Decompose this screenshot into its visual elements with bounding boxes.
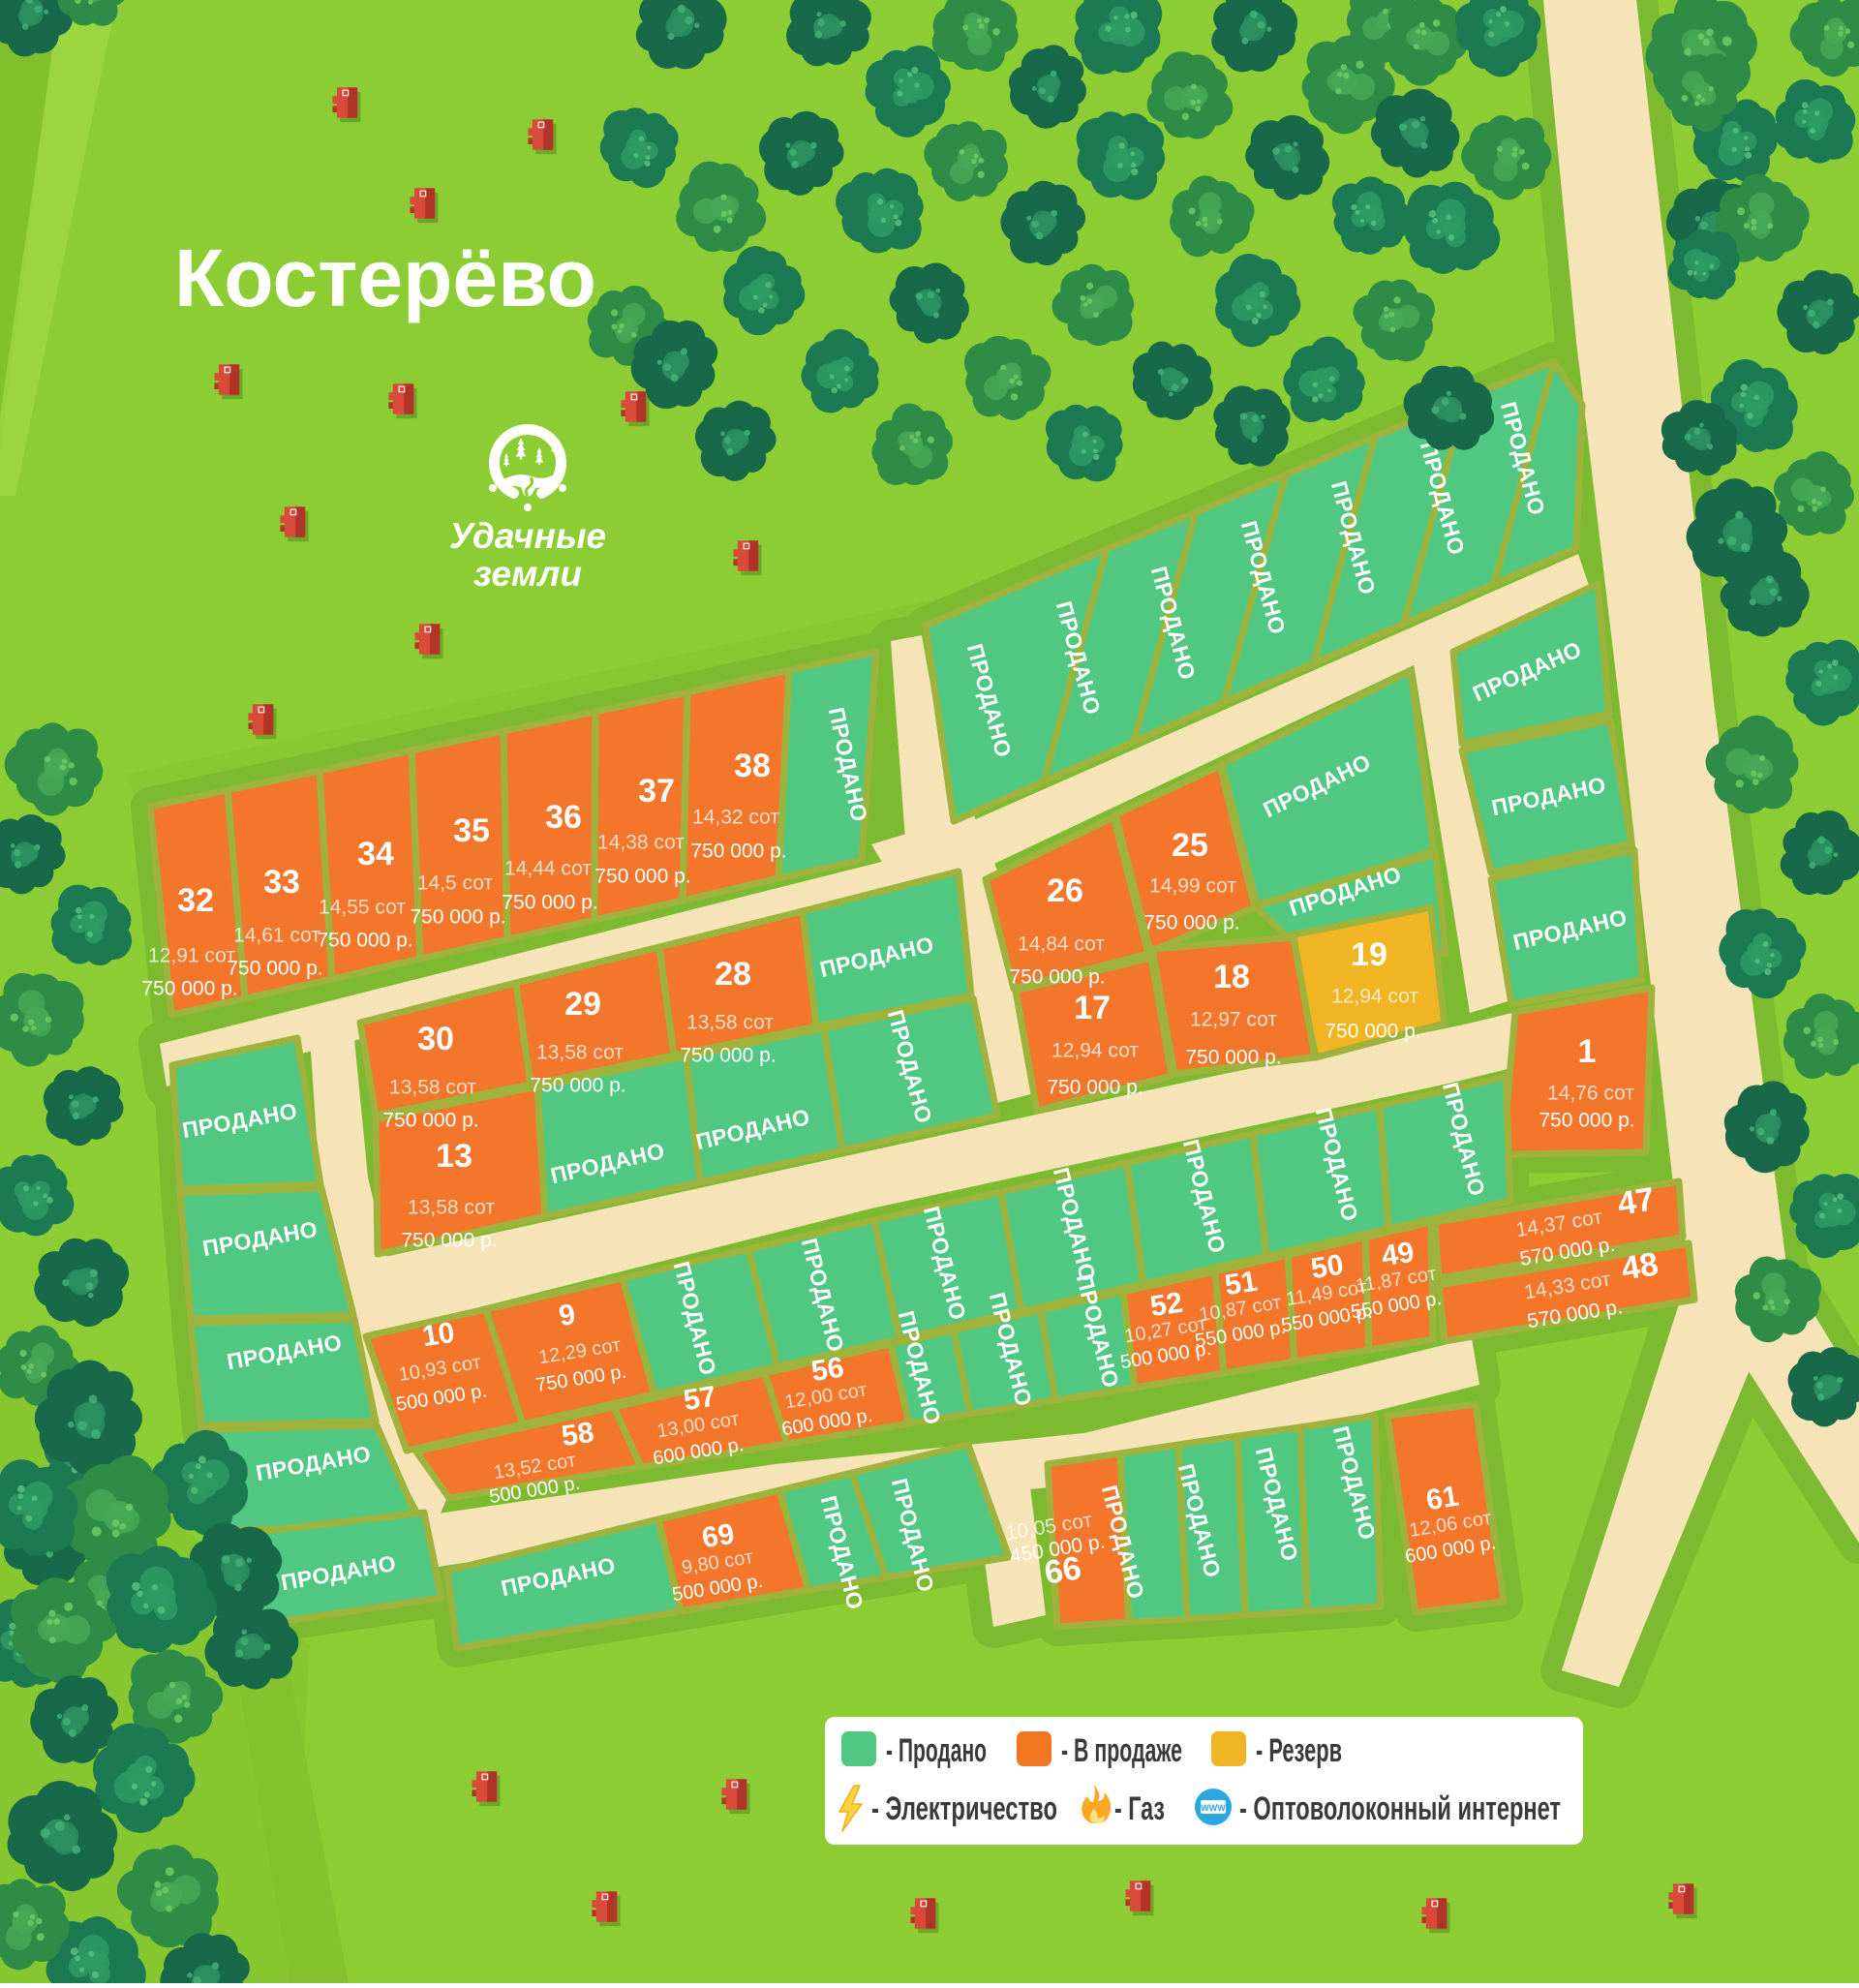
svg-text:- Газ: - Газ (1114, 1790, 1165, 1827)
svg-text:- Оптоволоконный интернет: - Оптоволоконный интернет (1239, 1790, 1561, 1827)
svg-text:14,44 сот: 14,44 сот (504, 858, 592, 880)
svg-text:12,97 сот: 12,97 сот (1190, 1009, 1277, 1031)
svg-text:750 000 р.: 750 000 р. (1539, 1110, 1634, 1132)
svg-text:750 000 р.: 750 000 р. (1325, 1021, 1420, 1043)
svg-text:30: 30 (417, 1021, 454, 1057)
svg-text:34: 34 (357, 836, 394, 872)
svg-text:14,55 сот: 14,55 сот (319, 897, 406, 919)
svg-text:33: 33 (263, 864, 300, 901)
svg-text:13,58 сот: 13,58 сот (389, 1077, 476, 1099)
svg-text:38: 38 (734, 748, 771, 784)
svg-text:13,58 сот: 13,58 сот (408, 1197, 495, 1219)
svg-text:- В продаже: - В продаже (1061, 1732, 1182, 1769)
svg-text:25: 25 (1172, 827, 1208, 864)
svg-text:19: 19 (1351, 936, 1387, 973)
svg-text:29: 29 (564, 986, 601, 1023)
svg-text:750 000 р.: 750 000 р. (594, 866, 690, 888)
svg-text:WWW: WWW (1201, 1803, 1226, 1813)
svg-text:37: 37 (638, 773, 675, 810)
svg-text:- Продано: - Продано (886, 1732, 987, 1769)
svg-text:750 000 р.: 750 000 р. (690, 841, 786, 863)
svg-text:Удачные: Удачные (449, 516, 606, 556)
svg-text:14,61 сот: 14,61 сот (233, 925, 320, 947)
svg-text:35: 35 (453, 812, 490, 849)
svg-text:750 000 р.: 750 000 р. (382, 1110, 478, 1132)
svg-text:12,94 сот: 12,94 сот (1331, 986, 1418, 1008)
svg-text:61: 61 (1424, 1481, 1461, 1517)
svg-text:750 000 р.: 750 000 р. (530, 1075, 625, 1097)
svg-text:13,58 сот: 13,58 сот (686, 1012, 774, 1034)
svg-text:58: 58 (560, 1417, 596, 1453)
svg-text:- Резерв: - Резерв (1256, 1732, 1342, 1769)
svg-text:14,38 сот: 14,38 сот (597, 832, 685, 854)
svg-text:36: 36 (545, 799, 582, 836)
svg-text:750 000 р.: 750 000 р. (317, 930, 412, 952)
svg-text:750 000 р.: 750 000 р. (680, 1045, 776, 1067)
svg-text:Костерёво: Костерёво (174, 232, 596, 323)
svg-text:26: 26 (1047, 872, 1083, 909)
svg-text:750 000 р.: 750 000 р. (141, 978, 237, 1000)
svg-text:1: 1 (1578, 1033, 1597, 1070)
svg-text:10: 10 (420, 1317, 457, 1354)
svg-text:48: 48 (1619, 1245, 1661, 1287)
svg-text:14,5 сот: 14,5 сот (417, 872, 494, 895)
svg-text:13,58 сот: 13,58 сот (536, 1042, 624, 1064)
svg-text:12,94 сот: 12,94 сот (1051, 1040, 1139, 1062)
svg-text:17: 17 (1074, 990, 1111, 1026)
svg-text:750 000 р.: 750 000 р. (401, 1230, 497, 1252)
svg-text:750 000 р.: 750 000 р. (410, 906, 505, 929)
svg-text:18: 18 (1213, 959, 1250, 995)
svg-text:12,91 сот: 12,91 сот (148, 945, 235, 967)
svg-text:750 000 р.: 750 000 р. (1143, 912, 1239, 934)
svg-text:750 000 р.: 750 000 р. (1047, 1077, 1143, 1099)
svg-text:28: 28 (715, 956, 751, 993)
svg-text:14,99 сот: 14,99 сот (1149, 875, 1236, 898)
svg-text:14,84 сот: 14,84 сот (1018, 933, 1105, 956)
svg-text:- Электричество: - Электричество (871, 1790, 1057, 1827)
svg-text:750 000 р.: 750 000 р. (1009, 966, 1105, 989)
svg-text:14,32 сот: 14,32 сот (692, 807, 779, 829)
svg-text:32: 32 (177, 882, 214, 919)
svg-text:750 000 р.: 750 000 р. (227, 958, 322, 980)
svg-text:14,76 сот: 14,76 сот (1547, 1083, 1634, 1105)
svg-text:13: 13 (436, 1138, 472, 1175)
svg-text:750 000 р.: 750 000 р. (1185, 1047, 1281, 1069)
svg-text:земли: земли (473, 554, 582, 594)
svg-text:47: 47 (1615, 1180, 1657, 1222)
svg-text:750 000 р.: 750 000 р. (502, 892, 597, 914)
